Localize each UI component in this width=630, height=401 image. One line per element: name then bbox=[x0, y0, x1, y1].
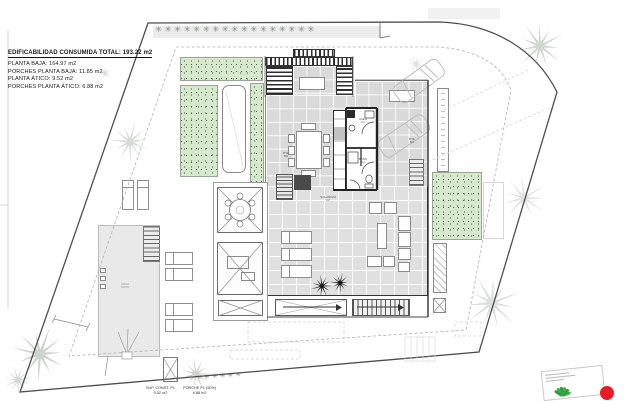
slope-value: 6% bbox=[410, 140, 414, 144]
step-box bbox=[100, 284, 106, 289]
stamp-text-line bbox=[546, 379, 564, 382]
step-box bbox=[100, 276, 106, 281]
sofa-module bbox=[367, 256, 382, 267]
kitchen-appliance-block bbox=[334, 127, 345, 140]
porch-roof-top bbox=[265, 57, 353, 66]
outdoor-shower bbox=[163, 357, 178, 382]
lawn-bed-top bbox=[180, 57, 263, 81]
dining-chair bbox=[288, 158, 295, 167]
slope-label-left: PTE 6% bbox=[278, 152, 294, 159]
site-plan-sheet: ✳✳✳✳✳✳✳✳✳✳✳✳✳✳✳✳✳ bbox=[0, 0, 630, 401]
planter bbox=[222, 85, 246, 173]
utility-box bbox=[433, 298, 446, 313]
sun-lounger bbox=[165, 319, 193, 332]
lawn-bed-right bbox=[432, 172, 482, 240]
gravel-strip bbox=[437, 88, 449, 172]
sun-lounger bbox=[281, 248, 312, 261]
sofa-module bbox=[398, 262, 410, 272]
dining-table bbox=[296, 131, 322, 169]
slope-value: 6% bbox=[284, 154, 288, 158]
dining-chair bbox=[288, 134, 295, 143]
red-marker-dot bbox=[600, 386, 614, 400]
bbq-block bbox=[294, 175, 311, 190]
stairs-interior bbox=[276, 174, 293, 200]
hedge-row-top: ✳✳✳✳✳✳✳✳✳✳✳✳✳✳✳✳✳ bbox=[155, 24, 317, 35]
sofa-module bbox=[384, 202, 397, 214]
bath-label: BAÑO m² bbox=[353, 158, 373, 165]
sun-lounger bbox=[165, 303, 193, 316]
sun-lounger bbox=[165, 252, 193, 265]
pergola-square-1 bbox=[217, 187, 263, 233]
ramp bbox=[275, 299, 347, 316]
wing-bench bbox=[389, 90, 415, 102]
step-box bbox=[100, 268, 106, 273]
lawn-bed-mid bbox=[250, 83, 264, 198]
dining-chair bbox=[323, 146, 330, 155]
stairs-wing bbox=[409, 159, 424, 186]
legend-line: PORCHES PLANTA BAJA: 11.85 m2 bbox=[8, 69, 158, 75]
dining-chair bbox=[301, 123, 316, 130]
coffee-table bbox=[377, 223, 387, 249]
outdoor-chair bbox=[241, 272, 255, 281]
aseo-label: ASEO m² bbox=[353, 118, 373, 125]
legend-line: PLANTA ÁTICO: 9.52 m2 bbox=[8, 76, 158, 82]
lower-level-outlines bbox=[230, 322, 481, 361]
gate-mark bbox=[380, 23, 390, 38]
aseo-unit: m² bbox=[361, 120, 365, 124]
stairs-exterior bbox=[352, 299, 410, 316]
legend-title: EDIFICABILIDAD CONSUMIDA TOTAL: 193.22 m… bbox=[8, 50, 152, 58]
porch-table bbox=[299, 77, 325, 90]
porch-roof-left bbox=[266, 66, 293, 95]
outdoor-table bbox=[227, 256, 249, 269]
hedge-row-bottom: ✳✳✳✳✳✳ bbox=[196, 370, 244, 381]
neighbor-outline bbox=[483, 182, 504, 239]
lawn-bed-left bbox=[180, 85, 218, 177]
summary-label: SUP. CONST. P1 bbox=[146, 386, 175, 390]
sofa-module bbox=[398, 232, 411, 247]
summary-label: PORCHE P1 (50%) bbox=[183, 386, 216, 390]
solarium-area-unit: m² bbox=[326, 198, 330, 202]
legend-line: PLANTA BAJA: 164.97 m2 bbox=[8, 61, 158, 67]
sun-lounger bbox=[122, 180, 134, 210]
hatch-strip bbox=[433, 243, 447, 293]
solarium-label: SOLARIUM m² bbox=[305, 196, 351, 203]
area-legend: EDIFICABILIDAD CONSUMIDA TOTAL: 193.22 m… bbox=[8, 41, 158, 90]
legend-line: PORCHES PLANTA ÁTICO: 6.88 m2 bbox=[8, 84, 158, 90]
sun-lounger bbox=[281, 265, 312, 278]
slope-label-wing: PTE 6% bbox=[404, 138, 420, 145]
stairs-lower-terrace bbox=[143, 226, 160, 262]
stamp-card bbox=[541, 365, 606, 401]
porch-roof-bar bbox=[293, 49, 335, 57]
kitchen-counter bbox=[333, 110, 346, 190]
summary-col: PORCHE P1 (50%) 6.88 m2 bbox=[183, 386, 216, 396]
porch-roof-right bbox=[336, 66, 353, 96]
sofa-module bbox=[369, 202, 382, 214]
sun-lounger bbox=[137, 180, 149, 210]
sofa-module bbox=[398, 248, 411, 260]
neighbor-band bbox=[428, 8, 500, 19]
dining-chair bbox=[323, 134, 330, 143]
summary-value: 9.52 m2 bbox=[154, 391, 168, 395]
bath-unit: m² bbox=[361, 160, 365, 164]
sun-lounger bbox=[165, 268, 193, 281]
pergola-bench bbox=[218, 300, 263, 316]
dining-chair bbox=[323, 158, 330, 167]
summary-col: SUP. CONST. P1 9.52 m2 bbox=[146, 386, 175, 396]
sofa-module bbox=[398, 216, 411, 231]
sofa-module bbox=[383, 256, 395, 267]
summary-value: 6.88 m2 bbox=[193, 391, 207, 395]
sun-lounger bbox=[281, 231, 312, 244]
summary-table: SUP. CONST. P1 9.52 m2 PORCHE P1 (50%) 6… bbox=[146, 386, 216, 396]
